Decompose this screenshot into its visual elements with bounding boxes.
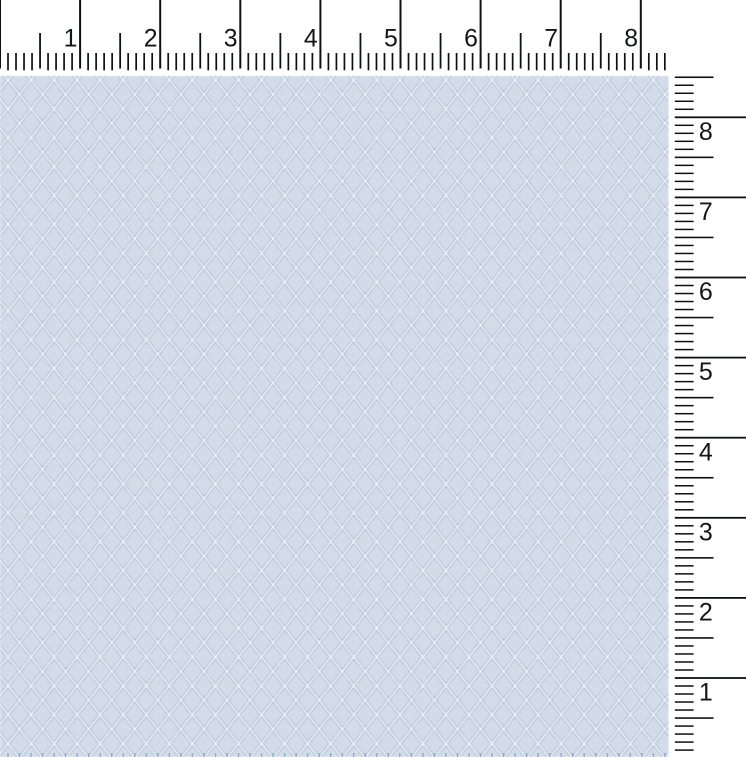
svg-text:1: 1	[64, 26, 78, 53]
svg-text:7: 7	[544, 26, 558, 53]
svg-text:4: 4	[699, 438, 713, 466]
svg-text:4: 4	[304, 26, 318, 53]
svg-text:3: 3	[224, 26, 238, 53]
svg-text:1: 1	[699, 679, 713, 707]
svg-text:6: 6	[464, 26, 478, 53]
svg-text:7: 7	[699, 198, 713, 226]
svg-text:3: 3	[699, 518, 713, 546]
svg-text:5: 5	[384, 26, 398, 53]
svg-text:6: 6	[699, 278, 713, 306]
svg-text:5: 5	[699, 358, 713, 386]
svg-text:8: 8	[624, 26, 638, 53]
svg-text:2: 2	[699, 599, 713, 627]
svg-text:8: 8	[699, 118, 713, 146]
svg-text:2: 2	[144, 26, 158, 53]
